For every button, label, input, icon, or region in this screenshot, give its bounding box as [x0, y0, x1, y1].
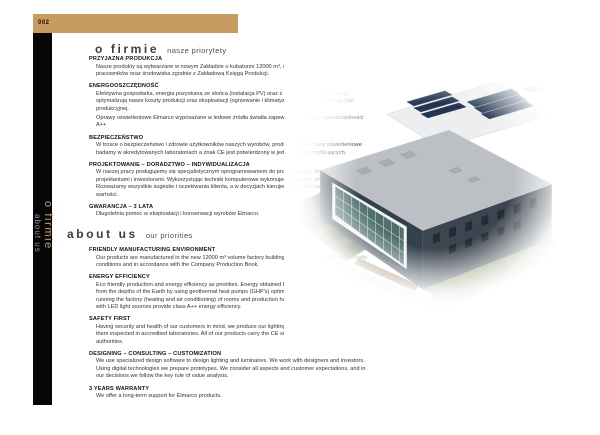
en-section-body: We offer a long-term support for Elmarco…	[96, 393, 373, 400]
rooftop-equipment	[524, 84, 546, 93]
section-header-pl: o firmie nasze priorytety	[95, 42, 227, 56]
en-section-heading: 3 YEARS WARRANTY	[89, 386, 373, 392]
sidebar-chapter-title-en: about us	[33, 214, 42, 253]
section-header-en: about us our priorities	[67, 227, 193, 241]
en-section-body: Having security and health of our custom…	[96, 324, 373, 346]
chapter-sidebar: o firmie about us	[33, 33, 52, 405]
chapter-sidebar-text: o firmie about us	[33, 33, 54, 405]
en-section-warranty: 3 YEARS WARRANTY We offer a long-term su…	[89, 386, 373, 401]
section-title-en: about us	[67, 227, 138, 241]
en-section-heading: DESIGNING – CONSULTING – CUSTOMIZATION	[89, 351, 373, 357]
top-accent-bar: 002	[33, 14, 238, 33]
factory-aerial-photo	[298, 50, 585, 325]
page-number: 002	[38, 20, 50, 26]
sidebar-chapter-title-pl: o firmie	[42, 201, 54, 250]
section-title-pl: o firmie	[95, 42, 159, 56]
en-section-body: We use specialized design software to de…	[96, 358, 373, 380]
section-subtitle-en: our priorities	[146, 231, 193, 240]
en-section-designing: DESIGNING – CONSULTING – CUSTOMIZATION W…	[89, 351, 373, 381]
factory-building-illustration	[298, 50, 585, 325]
section-subtitle-pl: nasze priorytety	[167, 46, 226, 55]
rear-hall-roof	[387, 82, 552, 148]
